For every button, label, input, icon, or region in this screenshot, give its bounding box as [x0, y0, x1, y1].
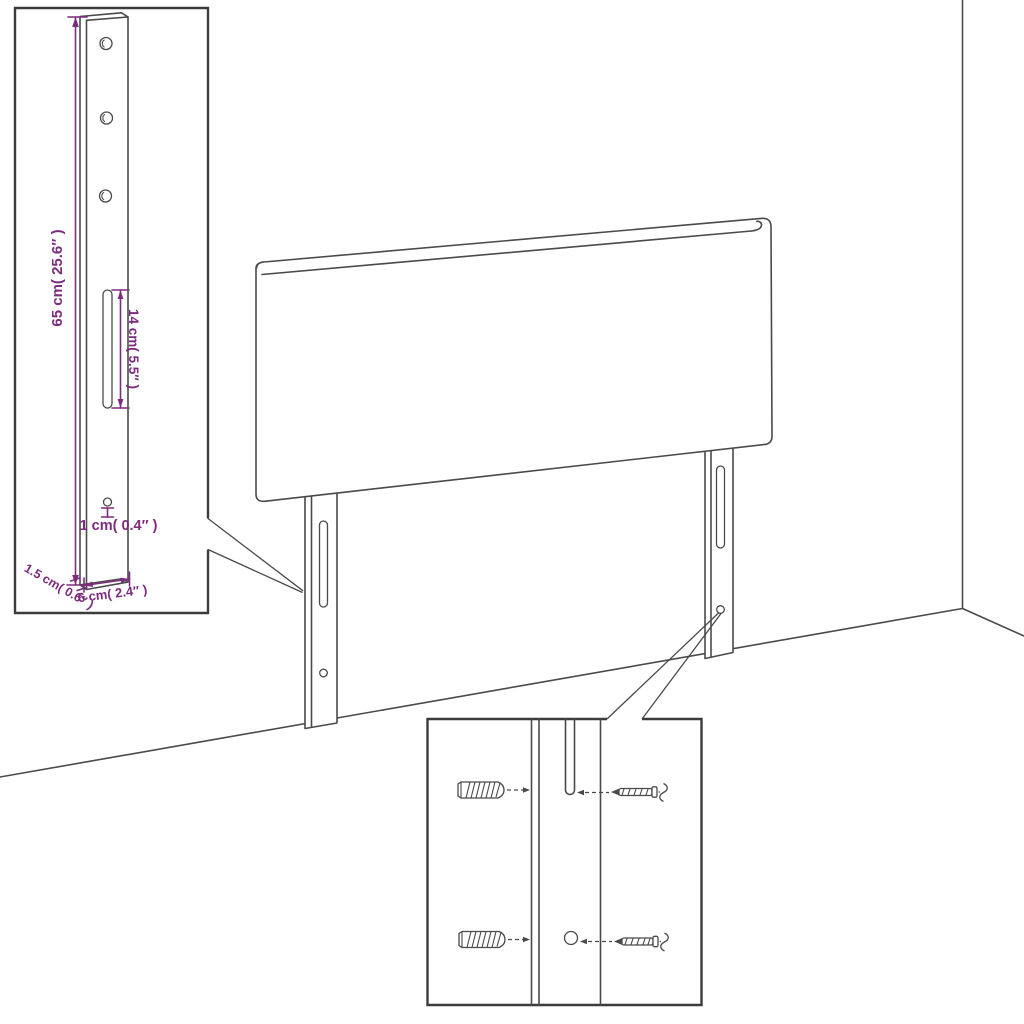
assembly-diagram-page: 65 cm( 25.6″ ) 14 cm( 5.5″ ) 1 cm( 0.4″ … — [0, 0, 1024, 1024]
leg-magnified-lines — [532, 719, 601, 1005]
wall-plug-top — [458, 782, 530, 798]
turn-squiggle — [660, 784, 668, 802]
wall-plug-icon — [458, 782, 504, 798]
arrow-left — [580, 939, 587, 944]
turn-squiggle — [661, 933, 669, 951]
detail-view-fixing-hardware — [428, 719, 702, 1005]
screw-head — [653, 936, 658, 946]
dim-hole-size-label: 1 cm( 0.4″ ) — [80, 518, 158, 534]
detail-leader-line — [208, 519, 303, 591]
arrow-left — [577, 790, 584, 795]
hole-circle — [565, 932, 578, 945]
right-leg — [705, 443, 733, 659]
detail-leader-line — [642, 614, 721, 720]
wall-plug-icon — [459, 932, 505, 948]
headboard-assembly-diagram: 65 cm( 25.6″ ) 14 cm( 5.5″ ) 1 cm( 0.4″ … — [0, 0, 1024, 1024]
slot-shape — [566, 719, 575, 795]
detail-view-leg-dimensions: 65 cm( 25.6″ ) 14 cm( 5.5″ ) 1 cm( 0.4″ … — [15, 8, 208, 613]
arrow-right — [523, 937, 530, 943]
detail-leader-line — [607, 613, 719, 720]
screw-bottom — [580, 933, 668, 951]
screw-head — [652, 787, 657, 797]
floor-line-left — [0, 609, 963, 778]
wall-plug-bottom — [459, 932, 530, 948]
dim-total-height-label: 65 cm( 25.6″ ) — [49, 229, 66, 326]
dim-slot-length-label: 14 cm( 5.5″ ) — [126, 309, 141, 389]
screw-tip — [611, 789, 619, 796]
floor-line-right — [963, 609, 1024, 637]
slot-shape — [717, 466, 725, 548]
detail-box-border — [428, 719, 702, 1005]
slot-shape — [320, 521, 328, 607]
screw-top — [577, 784, 667, 802]
detail-leader-line — [208, 550, 303, 593]
left-leg — [305, 489, 337, 729]
leader-lines — [208, 519, 721, 720]
screw-tip — [614, 938, 622, 945]
panel-outline — [256, 218, 772, 501]
arrow-right — [523, 787, 530, 793]
headboard-panel — [256, 218, 772, 501]
slot-shape — [103, 290, 112, 408]
